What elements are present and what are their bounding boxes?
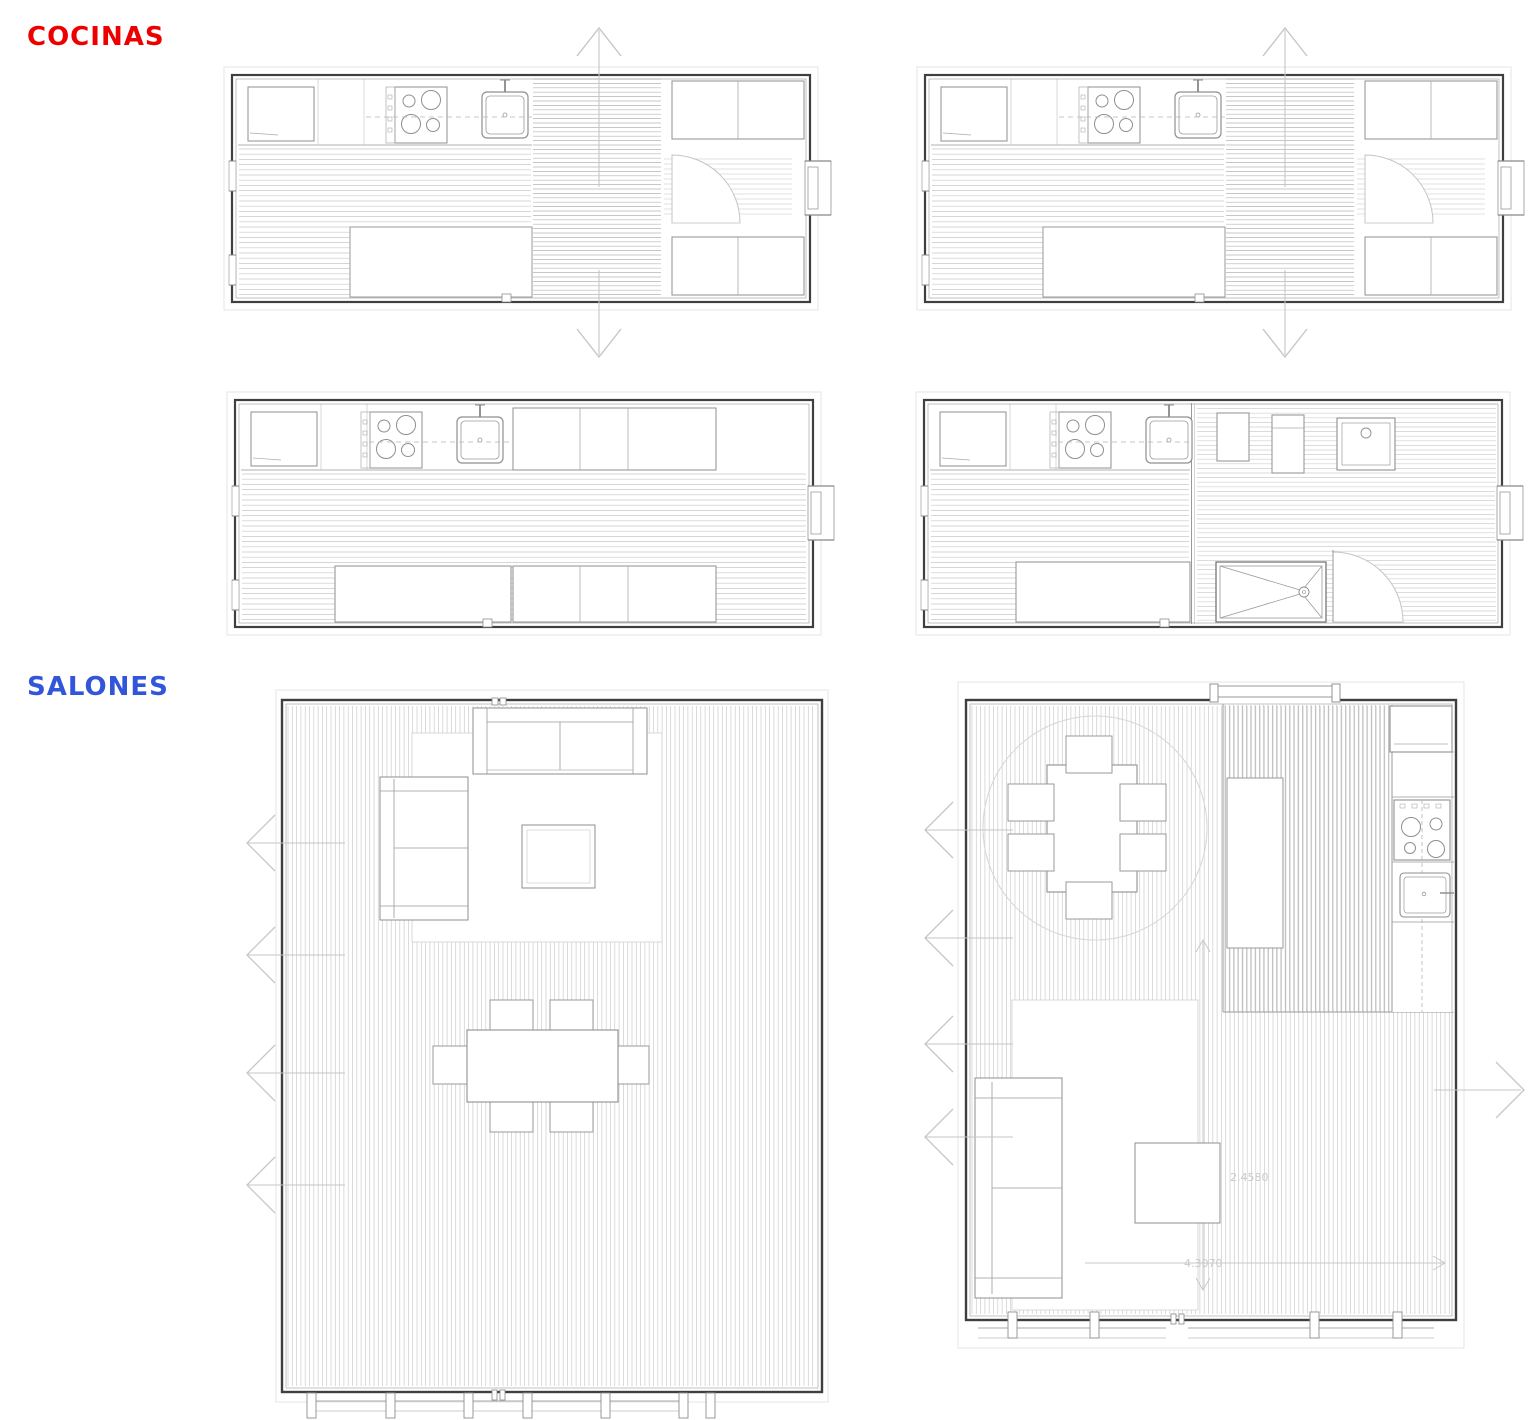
floor-plans-drawing: 2.45804.3070 [0, 0, 1540, 1420]
window-icon [803, 161, 831, 215]
flow-arrow-left-icon [247, 927, 345, 983]
cabinet-top-right [513, 408, 716, 470]
dimension-label-vertical: 2.4580 [1230, 1171, 1269, 1184]
flow-arrow-right-icon [1434, 1062, 1524, 1118]
sink-icon [1175, 80, 1221, 138]
dryer-icon [1272, 415, 1304, 473]
cabinet-top-right [672, 81, 804, 139]
stove-icon [1050, 412, 1111, 468]
window-icon [1496, 161, 1524, 215]
direction-arrow-up-icon [1263, 28, 1307, 187]
door-arc [1333, 550, 1403, 622]
sink-icon [1400, 873, 1454, 917]
kitchen-plan-top-right [917, 28, 1524, 357]
flow-arrow-left-icon [247, 1045, 345, 1101]
door-arc [672, 155, 740, 223]
washer-icon [1217, 413, 1249, 461]
window-icon [806, 486, 834, 540]
direction-arrow-up-icon [577, 28, 621, 187]
fridge-icon [1390, 706, 1452, 752]
sink-icon [1146, 405, 1192, 463]
kitchen-plan-top-left [224, 28, 831, 357]
salon-plan-left [247, 690, 828, 1418]
flow-arrow-left-icon [925, 802, 1013, 858]
flow-arrow-left-icon [247, 815, 345, 871]
dimension-label-horizontal: 4.3070 [1184, 1257, 1223, 1270]
door-arc [1365, 155, 1433, 223]
window-icon [1495, 486, 1523, 540]
stove-icon [1079, 87, 1140, 143]
fridge-icon [248, 87, 314, 141]
bath-sink-icon [1337, 418, 1395, 470]
flow-arrow-left-icon [925, 1016, 1013, 1072]
cabinet-bottom-right [1365, 237, 1497, 295]
bathtub-icon [1216, 562, 1326, 622]
dining-set [433, 1000, 649, 1132]
coffee-table [522, 825, 595, 888]
direction-arrow-down-icon [577, 270, 621, 357]
fridge-icon [251, 412, 317, 466]
kitchen-plan-middle-left [227, 392, 834, 635]
cabinet-bottom-right [672, 237, 804, 295]
sofa-left [380, 777, 468, 920]
sofa-top [473, 708, 647, 774]
fridge-icon [941, 87, 1007, 141]
direction-arrow-down-icon [1263, 270, 1307, 357]
stove-icon [361, 412, 422, 468]
top-window-band [1210, 684, 1340, 703]
fridge-icon [940, 412, 1006, 466]
flow-arrow-left-icon [247, 1157, 345, 1213]
flow-arrow-left-icon [925, 910, 1013, 966]
sink-icon [482, 80, 528, 138]
kitchen-plan-middle-right-with-bath [916, 392, 1523, 635]
stove-icon [386, 87, 447, 143]
sofa-left [975, 1078, 1062, 1298]
coffee-table [1135, 1143, 1220, 1223]
cabinet-bottom-right [513, 566, 716, 622]
salon-plan-right-with-kitchen: 2.45804.3070 [925, 682, 1524, 1348]
cabinet-top-right [1365, 81, 1497, 139]
sink-icon [457, 405, 503, 463]
bottom-window-sills [307, 1390, 715, 1418]
page-canvas: COCINAS SALONES 2.45804.3070 [0, 0, 1540, 1420]
dining-set [1008, 736, 1166, 919]
